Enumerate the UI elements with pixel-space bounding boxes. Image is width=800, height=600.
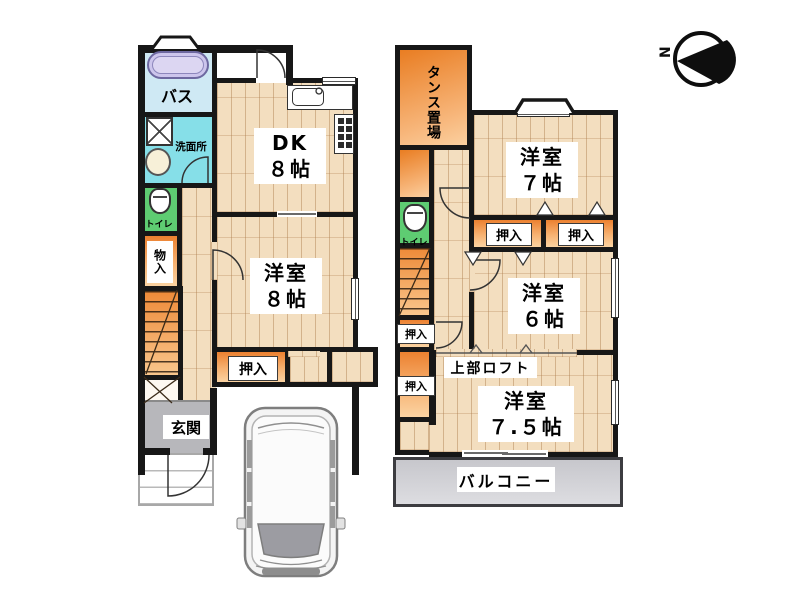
toilet-fixture-1f xyxy=(149,188,171,214)
compass-north-label: N xyxy=(658,46,674,58)
car xyxy=(237,408,345,576)
western-room8-label: 洋室 ８帖 xyxy=(250,258,322,314)
closet-area-b xyxy=(327,347,378,387)
dk-label-line1: DK xyxy=(272,130,308,156)
toilet-label-1f: トイレ xyxy=(140,217,178,229)
room6-door-opening xyxy=(469,258,475,292)
car-windshield xyxy=(258,524,324,558)
dk-label: DK ８帖 xyxy=(254,128,326,184)
room8-closet-opening xyxy=(288,351,320,357)
wall xyxy=(203,448,216,455)
kitchen-sink xyxy=(292,88,324,106)
room75-label-line1: 洋室 xyxy=(504,388,548,414)
dk-label-line2: ８帖 xyxy=(268,156,312,182)
car-body xyxy=(245,408,337,576)
car-rear-window-line2 xyxy=(258,430,324,435)
washbasin xyxy=(145,148,171,176)
stairs-2f xyxy=(395,243,434,320)
room75-label-line2: ７.５帖 xyxy=(488,414,564,440)
car-mirror-right xyxy=(336,518,345,529)
compass-needle xyxy=(677,40,736,84)
toilet-fixture-2f xyxy=(403,204,427,232)
window-room7-bay xyxy=(517,110,570,117)
western-room7-label: 洋室 ７帖 xyxy=(506,142,578,198)
western-room75-label: 洋室 ７.５帖 xyxy=(478,386,574,442)
wall xyxy=(286,45,293,85)
floor-plan-canvas: バス 洗面所 トイレ 物入 DK ８帖 洋室 ８帖 押入 玄関 タンス置場 トイ… xyxy=(0,0,800,600)
bathtub xyxy=(147,51,209,79)
closet-label-1f: 押入 xyxy=(228,356,278,381)
closet-side-lower-label: 押入 xyxy=(397,376,435,396)
car-side-windows xyxy=(247,440,335,528)
bath-label: バス xyxy=(156,84,198,106)
compass: N xyxy=(658,33,736,85)
entrance-porch-steps xyxy=(138,453,214,506)
car-mirror-left xyxy=(237,518,246,529)
car-bumper-line xyxy=(256,566,326,571)
window-dk-top xyxy=(322,77,356,85)
toilet-label-2f: トイレ xyxy=(396,235,432,247)
room8-label-line2: ８帖 xyxy=(264,286,308,312)
loft-boundary-strip xyxy=(436,349,577,357)
door-arc-dk-entry xyxy=(257,50,285,78)
tansu-label: タンス置場 xyxy=(421,57,445,147)
entrance-label: 玄関 xyxy=(163,415,209,439)
washroom-label: 洗面所 xyxy=(169,139,213,153)
room6-label-line1: 洋室 xyxy=(522,280,566,306)
closet-top-right-label: 押入 xyxy=(558,223,604,246)
window-room8-right xyxy=(351,278,359,320)
room7-label-line1: 洋室 xyxy=(520,144,564,170)
car-rear-window-line xyxy=(258,423,324,428)
storage-label: 物入 xyxy=(147,241,173,283)
room6-label-line2: ６帖 xyxy=(522,306,566,332)
window-room6-right xyxy=(611,258,619,318)
western-room6-label: 洋室 ６帖 xyxy=(508,278,580,334)
car-hood-line xyxy=(260,560,322,565)
room8-door-opening xyxy=(211,242,217,280)
balcony-label: バルコニー xyxy=(457,467,555,492)
kitchen-stove xyxy=(334,114,354,154)
loft-label: 上部ロフト xyxy=(444,357,537,378)
balcony-sliding-door xyxy=(462,450,548,457)
window-room75-right xyxy=(611,380,619,425)
wall xyxy=(352,385,359,475)
room8-label-line1: 洋室 xyxy=(264,260,308,286)
closet-top-left-label: 押入 xyxy=(486,223,532,246)
wall xyxy=(138,448,170,455)
compass-circle xyxy=(675,33,727,85)
hallway-1f xyxy=(182,183,216,407)
hallway-2f xyxy=(434,145,474,355)
room7-label-line2: ７帖 xyxy=(520,170,564,196)
dk-entry-opening xyxy=(256,78,286,83)
closet-side-upper-label: 押入 xyxy=(397,324,435,344)
tansu-strip xyxy=(395,150,434,202)
car-grille xyxy=(262,568,320,575)
car-roof xyxy=(252,416,330,568)
bathtub-inner xyxy=(152,56,204,74)
wall xyxy=(210,388,217,455)
wall xyxy=(138,45,145,475)
dk-room8-sliding-door xyxy=(277,211,317,217)
